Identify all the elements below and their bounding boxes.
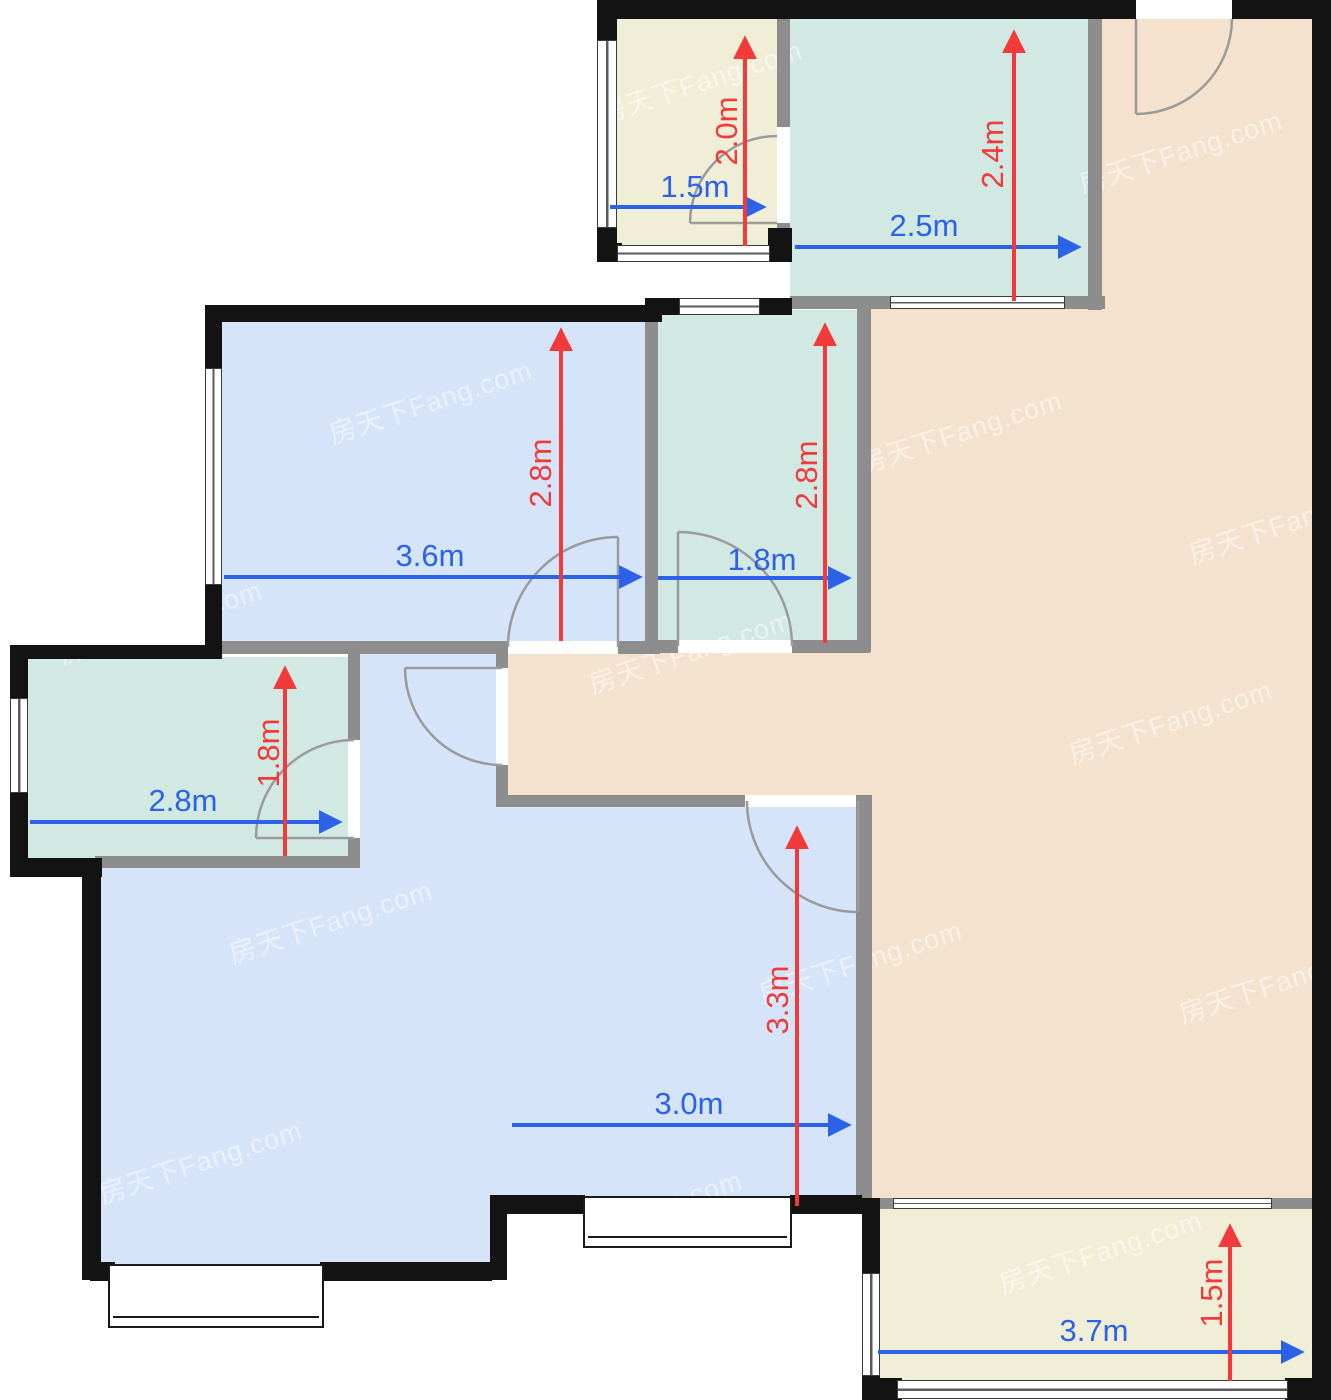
wall-segment [777, 10, 790, 127]
door-opening [1136, 0, 1232, 19]
wall-segment [490, 1195, 507, 1280]
floor-plan: 房天下Fang.com 房天下Fang.com 房天下Fang.com 房天下F… [0, 0, 1331, 1400]
wall-segment [496, 652, 508, 668]
small-room-left [26, 657, 350, 858]
living-area-mid [865, 300, 1100, 1204]
window [10, 698, 28, 793]
wall-segment [862, 1372, 880, 1400]
door-opening [496, 668, 508, 765]
wall-segment [348, 645, 360, 740]
room-top-kitchen [790, 18, 1088, 296]
dim-label-depth: 1.8m [251, 719, 287, 788]
door-opening [348, 740, 360, 838]
living-area-right [1095, 18, 1314, 1204]
window [617, 245, 770, 262]
window [897, 1380, 1288, 1399]
bay-window [583, 1196, 792, 1248]
bay-window [108, 1264, 324, 1328]
dim-label-depth: 3.3m [760, 966, 796, 1035]
wall-segment [862, 1198, 880, 1276]
window [890, 296, 1065, 309]
wall-segment [505, 1195, 585, 1214]
dim-label-depth: 2.8m [523, 439, 559, 508]
dim-label-width: 3.6m [396, 538, 465, 574]
dim-label-width: 1.5m [661, 169, 730, 205]
bedroom-lower-left-a [357, 652, 505, 867]
dim-label-depth: 2.4m [975, 120, 1011, 189]
bedroom-upper-left [220, 320, 650, 643]
wall-segment [618, 641, 660, 654]
wall-segment [1285, 1378, 1331, 1400]
bedroom-lower-left-b [98, 863, 505, 1265]
wall-segment [597, 0, 1136, 19]
wall-segment [205, 305, 662, 322]
dim-label-depth: 1.5m [1194, 1259, 1230, 1328]
wall-segment [1312, 0, 1331, 1400]
wall-segment [1272, 1198, 1314, 1209]
hallway [500, 650, 870, 798]
door-opening [745, 795, 856, 807]
window [893, 1198, 1272, 1209]
window [597, 40, 617, 228]
door-opening [678, 640, 792, 653]
room-top-left-small [615, 16, 779, 246]
dim-label-width: 1.8m [728, 542, 797, 578]
wall-segment [790, 1195, 862, 1214]
wall-segment [10, 645, 222, 659]
wall-segment [856, 795, 872, 1205]
dim-label-width: 2.8m [149, 783, 218, 819]
wall-segment [760, 298, 792, 315]
window [679, 298, 760, 315]
wall-segment [645, 310, 658, 640]
wall-segment [857, 300, 871, 652]
window [862, 1273, 880, 1376]
dim-label-depth: 2.8m [789, 441, 825, 510]
wall-segment [768, 228, 792, 262]
wall-segment [320, 1262, 492, 1281]
balcony [878, 1207, 1314, 1382]
bedroom-bottom-middle [505, 800, 860, 1198]
wall-segment [496, 795, 745, 807]
dim-label-width: 3.7m [1060, 1313, 1129, 1349]
wall-segment [792, 640, 870, 653]
door-opening [777, 127, 790, 223]
wall-segment [1088, 10, 1102, 310]
dim-label-width: 2.5m [890, 208, 959, 244]
dim-label-depth: 2.0m [709, 97, 745, 166]
dim-label-width: 3.0m [655, 1086, 724, 1122]
door-opening [508, 641, 618, 654]
wall-segment [645, 298, 679, 315]
bathroom-middle [652, 310, 860, 642]
wall-segment [790, 296, 890, 309]
window [205, 368, 222, 585]
wall-segment [95, 856, 360, 868]
wall-segment [82, 858, 101, 1280]
